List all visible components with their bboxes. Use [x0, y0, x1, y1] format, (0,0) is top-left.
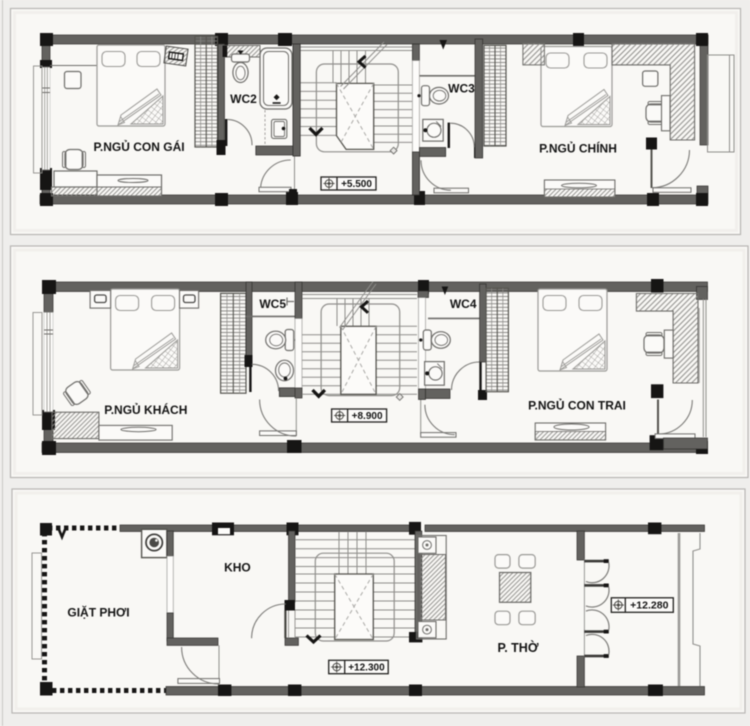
svg-text:KHO: KHO	[224, 561, 251, 575]
svg-text:+8.900: +8.900	[352, 411, 383, 422]
svg-text:P.NGỦ CON TRAI: P.NGỦ CON TRAI	[528, 398, 626, 413]
svg-text:P. THỜ: P. THỜ	[498, 640, 539, 655]
svg-text:P.NGỦ CHÍNH: P.NGỦ CHÍNH	[539, 141, 617, 156]
svg-text:+5.500: +5.500	[341, 179, 372, 190]
svg-text:P.NGỦ CON GÁI: P.NGỦ CON GÁI	[93, 139, 184, 154]
svg-text:+12.300: +12.300	[348, 663, 385, 674]
svg-text:GIẶT PHƠI: GIẶT PHƠI	[67, 605, 129, 620]
svg-text:WC5: WC5	[259, 297, 286, 311]
svg-text:P.NGỦ KHÁCH: P.NGỦ KHÁCH	[104, 402, 187, 417]
svg-text:+12.280: +12.280	[630, 600, 668, 612]
svg-text:WC3: WC3	[448, 82, 475, 96]
svg-text:WC4: WC4	[450, 297, 477, 311]
svg-text:WC2: WC2	[230, 92, 257, 106]
